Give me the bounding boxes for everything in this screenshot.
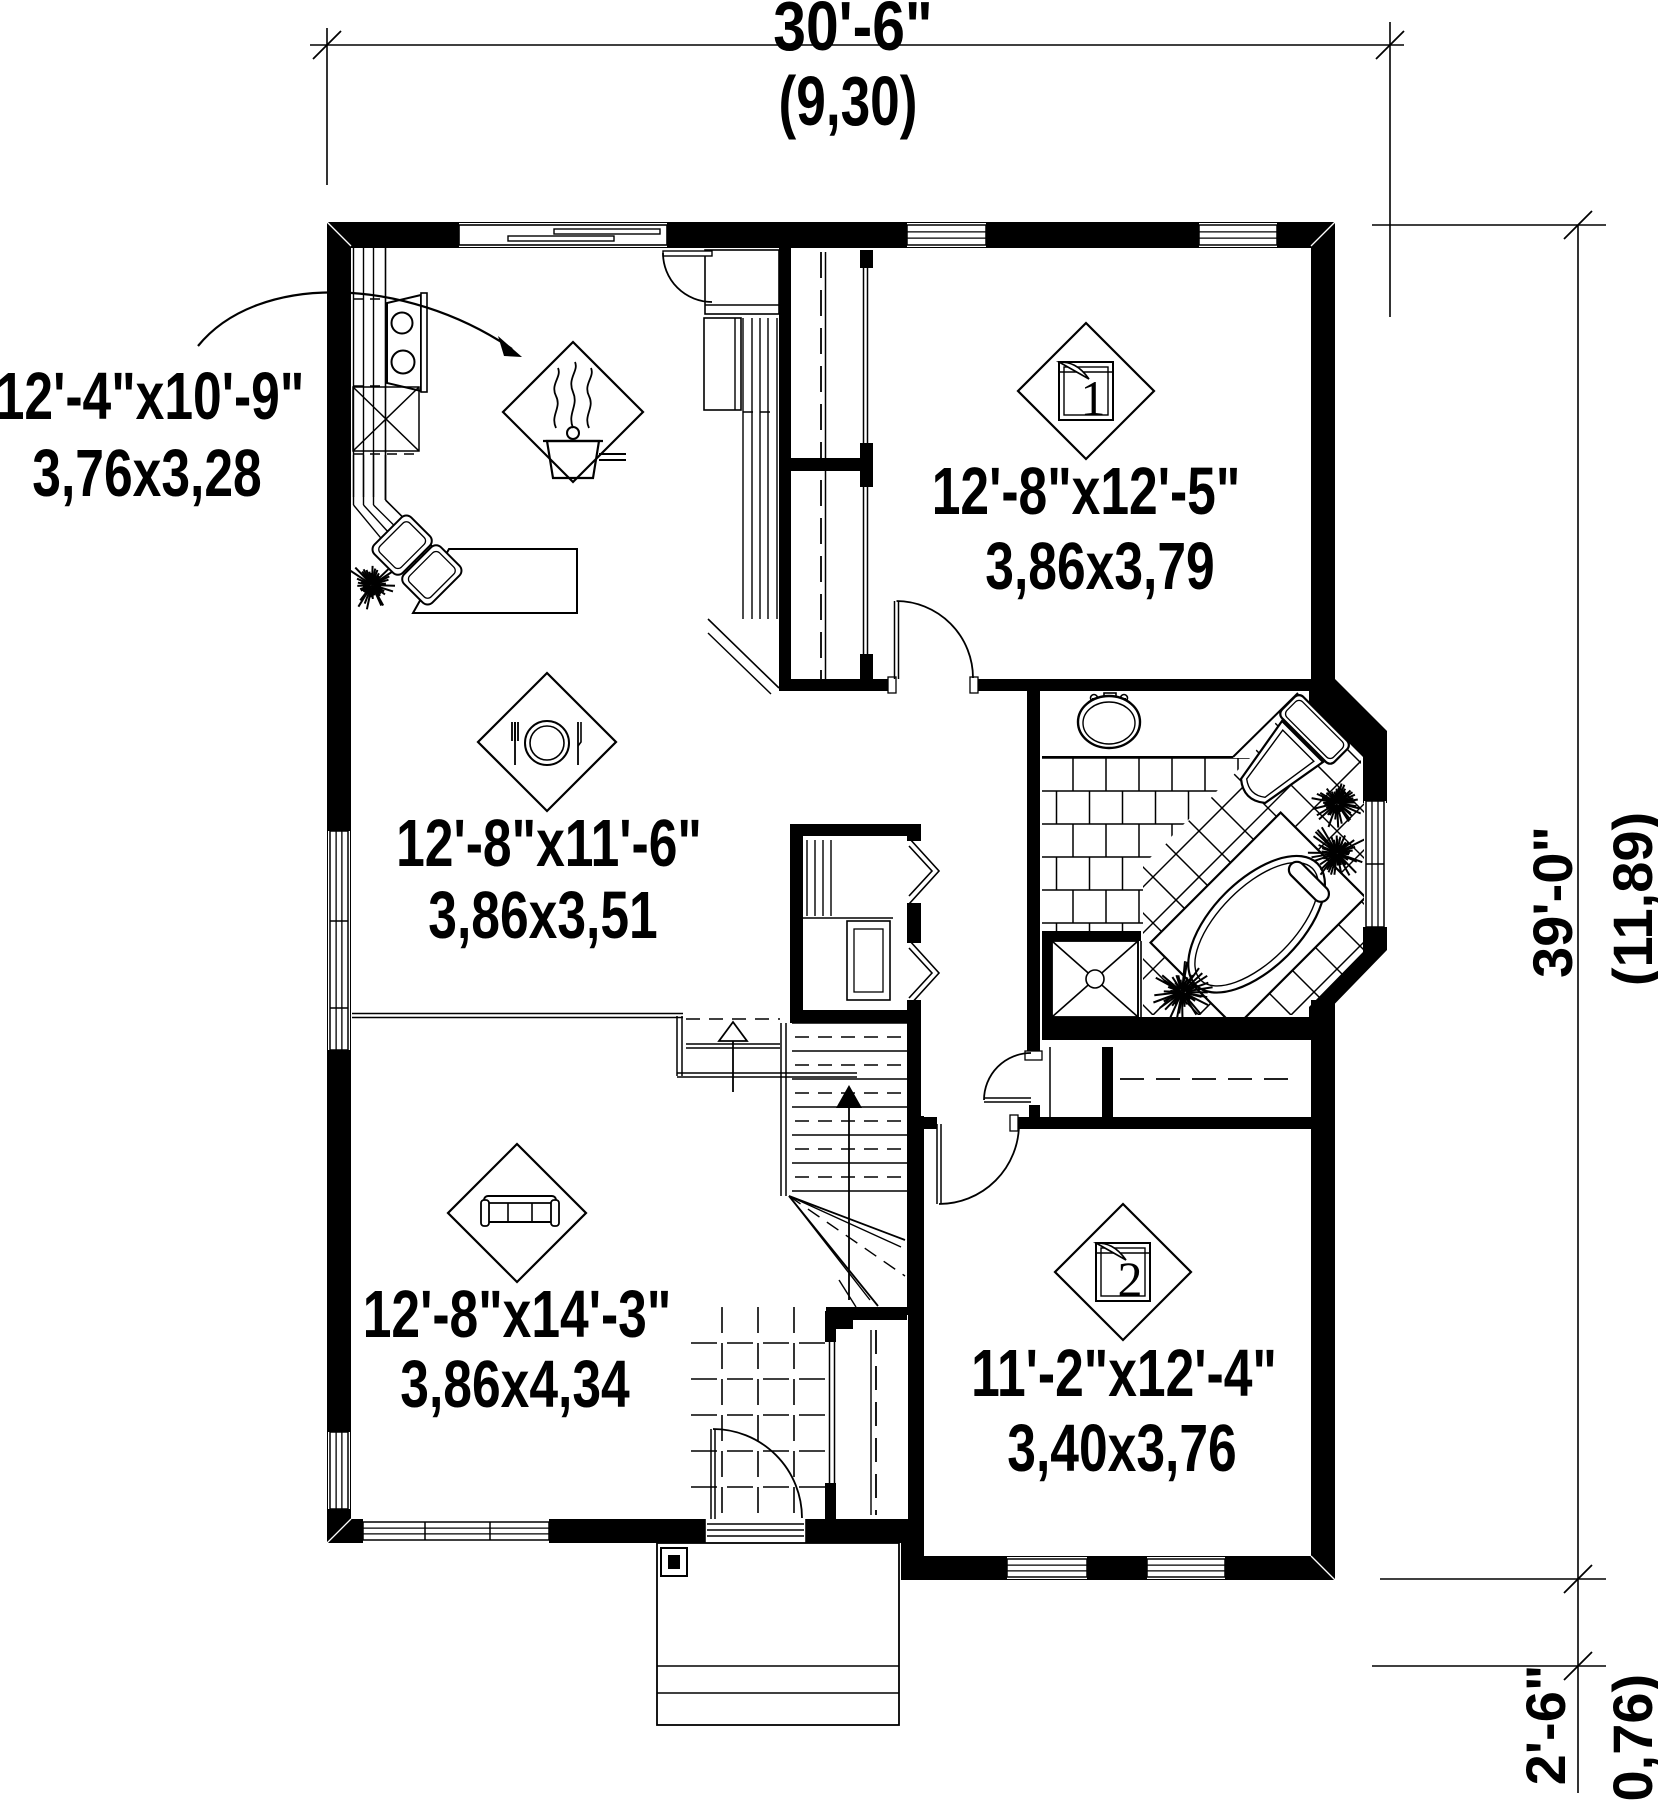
svg-text:3,40x3,76: 3,40x3,76 (1007, 1410, 1236, 1485)
svg-text:12'-8"x12'-5": 12'-8"x12'-5" (932, 453, 1241, 528)
svg-text:(11,89): (11,89) (1601, 812, 1658, 986)
svg-text:12'-8"x11'-6": 12'-8"x11'-6" (396, 805, 702, 880)
svg-text:2: 2 (1118, 1251, 1143, 1307)
svg-text:30'-6": 30'-6" (773, 0, 933, 65)
svg-text:(0,76): (0,76) (1601, 1674, 1658, 1800)
svg-text:3,86x4,34: 3,86x4,34 (400, 1346, 629, 1421)
svg-text:2'-6": 2'-6" (1514, 1665, 1577, 1786)
svg-text:12'-4"x10'-9": 12'-4"x10'-9" (0, 358, 304, 433)
svg-text:12'-8"x14'-3": 12'-8"x14'-3" (363, 1276, 672, 1351)
svg-text:3,76x3,28: 3,76x3,28 (32, 435, 261, 510)
svg-text:3,86x3,79: 3,86x3,79 (985, 528, 1214, 603)
svg-text:(9,30): (9,30) (779, 63, 918, 141)
svg-text:11'-2"x12'-4": 11'-2"x12'-4" (971, 1335, 1277, 1410)
svg-text:39'-0": 39'-0" (1521, 826, 1584, 978)
svg-text:3,86x3,51: 3,86x3,51 (428, 877, 657, 952)
svg-text:1: 1 (1081, 370, 1106, 426)
